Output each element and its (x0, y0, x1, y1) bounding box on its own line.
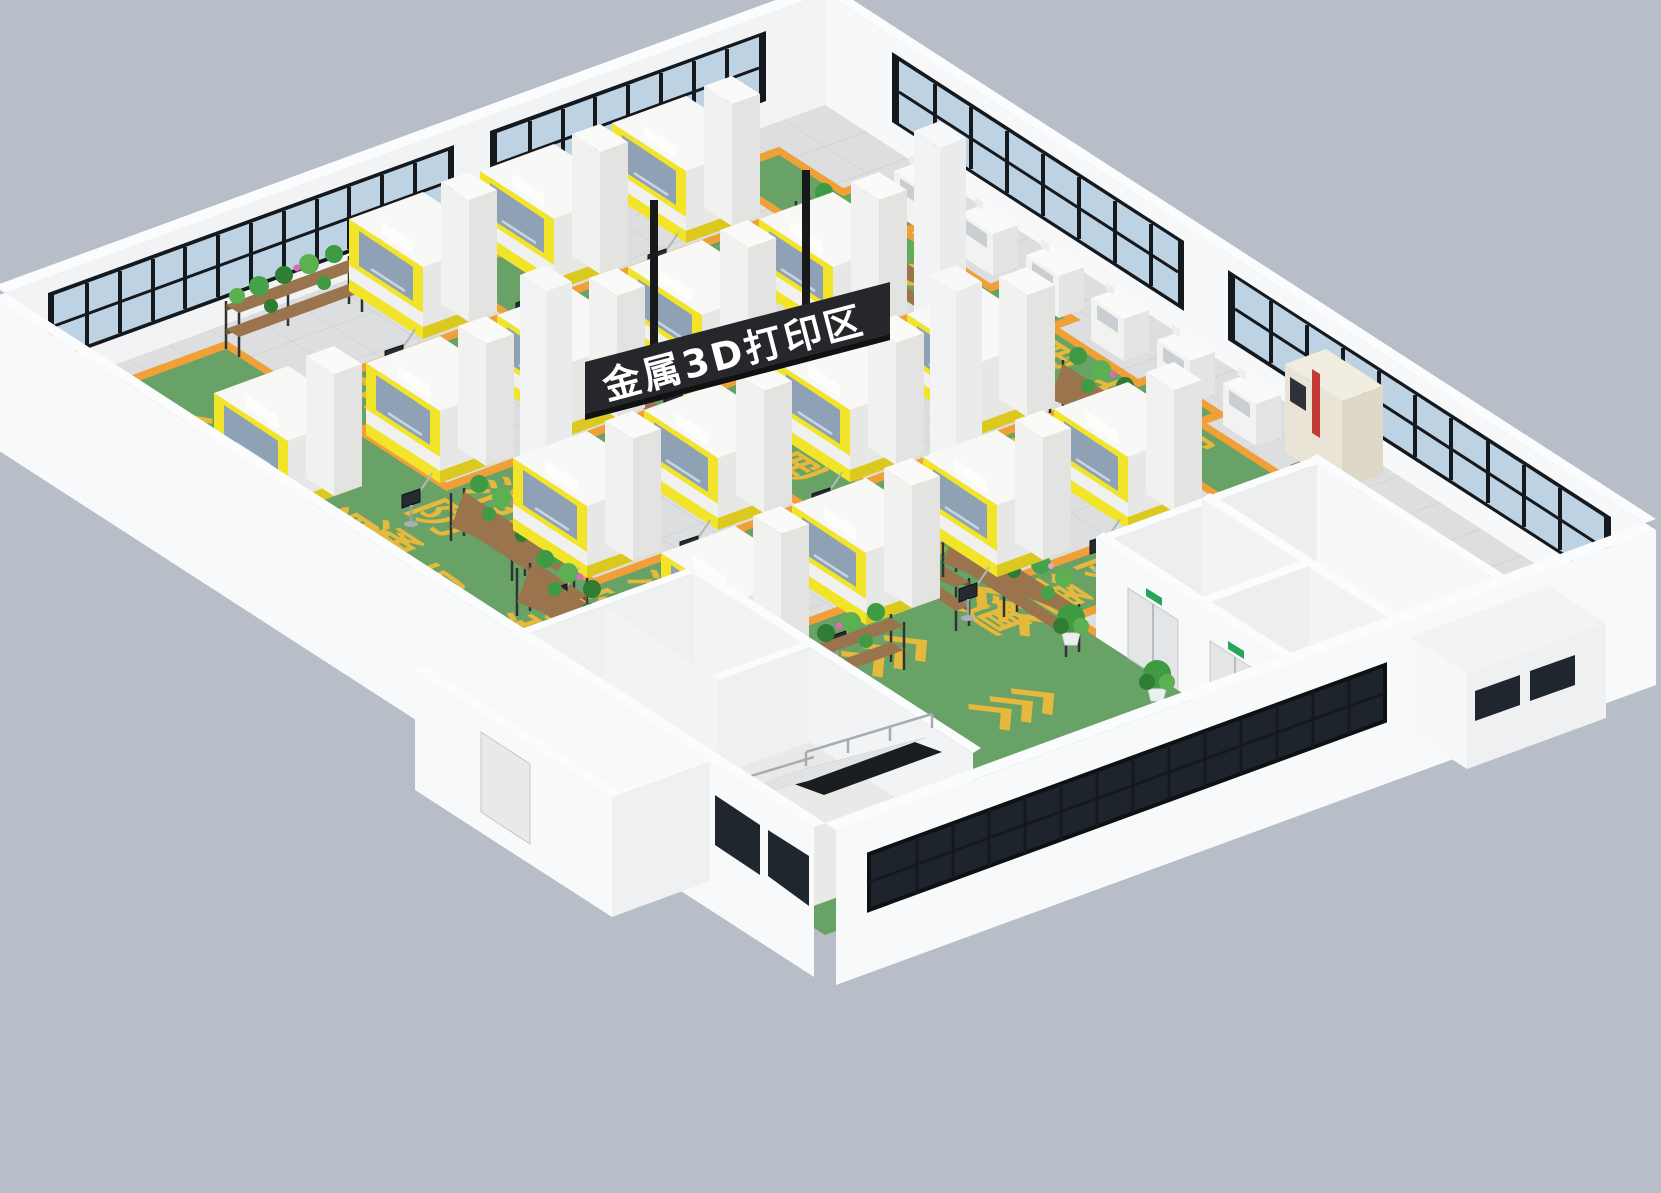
sign-post (650, 200, 658, 348)
factory-render: 消 防 通 道 消 防 通 道 消 防 通 道 消 防 通 道 消 防 通 道 … (0, 0, 1661, 1193)
metal-3d-printing-zone-scene: 消 防 通 道 消 防 通 道 消 防 通 道 消 防 通 道 消 防 通 道 … (0, 0, 1661, 1193)
sign-post (802, 170, 810, 306)
